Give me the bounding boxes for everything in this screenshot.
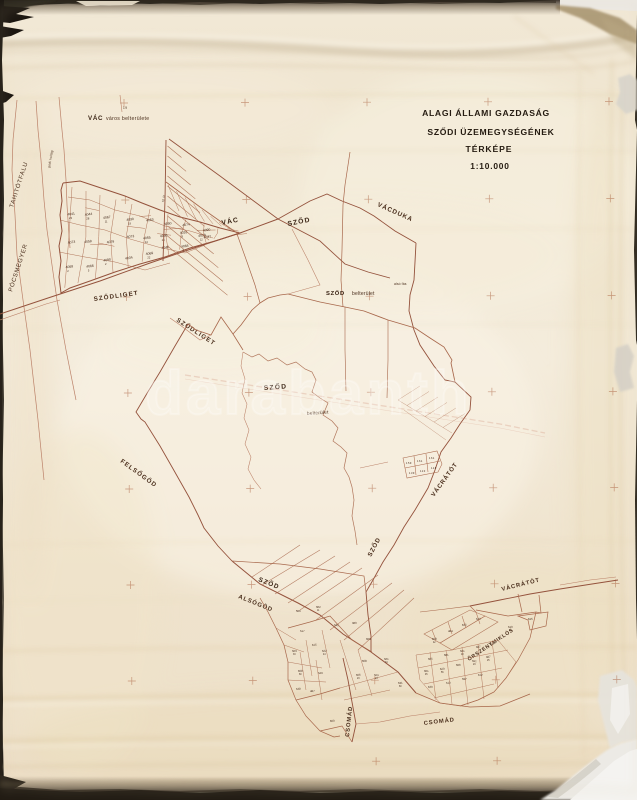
svg-text:565: 565: [428, 657, 433, 661]
svg-text:159: 159: [406, 461, 412, 465]
svg-text:600: 600: [330, 719, 335, 723]
svg-text:568: 568: [362, 659, 367, 663]
svg-text:480: 480: [352, 621, 357, 625]
svg-text:506: 506: [296, 609, 301, 613]
svg-text:161: 161: [429, 456, 435, 460]
svg-text:darabanth: darabanth: [145, 359, 472, 428]
svg-text:597: 597: [462, 677, 467, 681]
svg-text:SZŐDI ÜZEMEGYSÉGÉNEK: SZŐDI ÜZEMEGYSÉGÉNEK: [427, 126, 554, 137]
svg-text:615: 615: [312, 643, 317, 647]
svg-text:513: 513: [446, 681, 451, 685]
svg-text:belterület: belterület: [352, 291, 375, 297]
svg-text:531: 531: [398, 681, 403, 685]
svg-text:635: 635: [462, 622, 467, 627]
svg-text:1:10.000: 1:10.000: [470, 161, 509, 171]
svg-text:532: 532: [334, 623, 339, 627]
svg-text:608: 608: [298, 669, 303, 673]
svg-text:569: 569: [374, 673, 379, 677]
svg-text:538: 538: [296, 687, 301, 691]
svg-text:484: 484: [448, 629, 453, 633]
svg-text:524: 524: [476, 617, 481, 621]
svg-text:503: 503: [292, 649, 297, 653]
svg-text:SZŐD: SZŐD: [326, 290, 345, 297]
svg-text:161: 161: [417, 459, 423, 463]
svg-text:615: 615: [528, 617, 533, 621]
svg-text:601: 601: [424, 669, 429, 673]
svg-text:620: 620: [440, 667, 445, 671]
svg-text:110: 110: [420, 469, 426, 473]
svg-text:VÁC: VÁC: [88, 115, 103, 122]
svg-text:118: 118: [431, 466, 437, 470]
svg-text:630: 630: [428, 685, 433, 689]
svg-text:TÉRKÉPE: TÉRKÉPE: [466, 144, 513, 154]
svg-text:603: 603: [366, 637, 371, 641]
svg-text:város belterülete: város belterülete: [106, 116, 149, 122]
svg-text:506: 506: [356, 673, 361, 677]
svg-text:591: 591: [472, 659, 477, 663]
svg-text:522: 522: [322, 649, 327, 653]
svg-text:581: 581: [444, 653, 449, 657]
svg-text:501: 501: [384, 657, 389, 661]
svg-text:501: 501: [460, 649, 465, 653]
svg-text:612: 612: [478, 673, 483, 677]
svg-text:506: 506: [456, 663, 461, 667]
svg-text:487: 487: [310, 689, 315, 693]
svg-text:19: 19: [123, 106, 128, 110]
svg-text:487: 487: [486, 655, 491, 659]
svg-text:517: 517: [490, 642, 495, 646]
svg-text:alsó fás: alsó fás: [394, 282, 407, 286]
svg-text:139: 139: [409, 471, 415, 475]
svg-text:510: 510: [508, 625, 513, 629]
svg-text:ALAGI ÁLLAMI GAZDASÁG: ALAGI ÁLLAMI GAZDASÁG: [422, 108, 550, 118]
svg-text:529: 529: [318, 671, 323, 675]
svg-text:602: 602: [316, 605, 321, 609]
svg-text:517: 517: [300, 629, 305, 633]
svg-text:608: 608: [432, 637, 437, 641]
svg-text:487: 487: [476, 645, 481, 649]
